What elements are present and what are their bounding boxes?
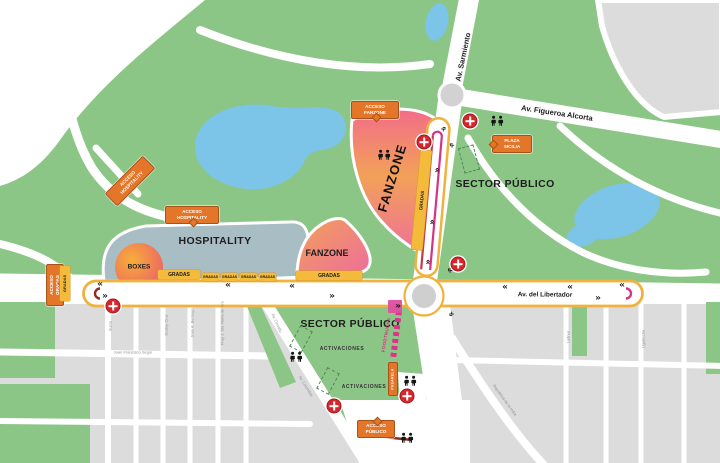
chevron-icon: »: [595, 295, 601, 304]
gradas-strip: GRADAS: [296, 271, 362, 280]
restroom-icon: [378, 150, 390, 161]
chevron-icon: «: [289, 283, 295, 292]
activaciones-label: ACTIVACIONES: [342, 384, 387, 390]
roundabout-sarmiento: [439, 82, 465, 108]
gradas-strip: GRADAS: [60, 266, 70, 301]
map-base: [0, 0, 720, 463]
roundabout-libertador: [411, 283, 438, 310]
gradas-strip: GRADAS: [202, 273, 219, 281]
street-ugarteche-label: Ugarteche: [641, 330, 646, 348]
sector-publico-north-label: SECTOR PÚBLICO: [455, 178, 554, 190]
restroom-icon: [491, 116, 503, 127]
medical-cross-icon: [417, 135, 432, 150]
chevron-icon: «: [619, 282, 625, 291]
chevron-icon: »: [329, 293, 335, 302]
fanzone-label: FANZONE: [305, 248, 348, 258]
chevron-icon: «: [431, 167, 441, 174]
street-segui-label: Juan Francisco Seguí: [114, 350, 153, 355]
boxes-label: BOXES: [128, 264, 151, 271]
activaciones-label: ACTIVACIONES: [320, 346, 365, 352]
circuit-event-map: Av. Sarmiento Av. Figueroa Alcorta Av. d…: [0, 0, 720, 463]
restroom-icon: [404, 376, 416, 387]
chevron-icon: «: [225, 282, 231, 291]
restroom-icon: [401, 433, 413, 444]
hospitality-label: HOSPITALITY: [178, 235, 251, 247]
chevron-icon: «: [422, 259, 431, 265]
street-label: Sucre: [108, 321, 113, 331]
medical-cross-icon: [327, 399, 342, 414]
medical-cross-icon: [400, 389, 415, 404]
chevron-icon: «: [502, 284, 508, 293]
chevron-icon: »: [102, 293, 108, 302]
street-label: Fray J. Sta María de Oro: [220, 301, 225, 345]
chevron-icon: «: [567, 284, 573, 293]
medical-cross-icon: [463, 114, 478, 129]
av-del-libertador-label: Av. del Libertador: [518, 291, 573, 299]
acceso-fanzone-tag: ACCESO FANZONE: [351, 101, 399, 119]
gradas-strip: GRADAS: [240, 273, 257, 281]
pasarela-strip: PASARELA: [388, 362, 398, 396]
chevron-icon: »: [394, 302, 401, 312]
plaza-sicilia-tag: PLAZA SICILIA: [492, 135, 532, 153]
acceso-publico-tag: ACCESO PÚBLICO: [357, 420, 395, 438]
gradas-strip: GRADAS: [259, 273, 276, 281]
street-label: Godoy Cruz: [164, 314, 169, 335]
restroom-icon: [290, 352, 302, 363]
chevron-icon: «: [426, 219, 435, 225]
chevron-icon: «: [97, 281, 103, 290]
street-label: José A. Bermejo: [190, 308, 195, 337]
street-lafinur-label: Lafinur: [566, 331, 571, 343]
acceso-hospitality-tag: ACCESO HOSPITALITY: [165, 206, 219, 224]
gradas-strip: GRADAS: [158, 270, 200, 279]
